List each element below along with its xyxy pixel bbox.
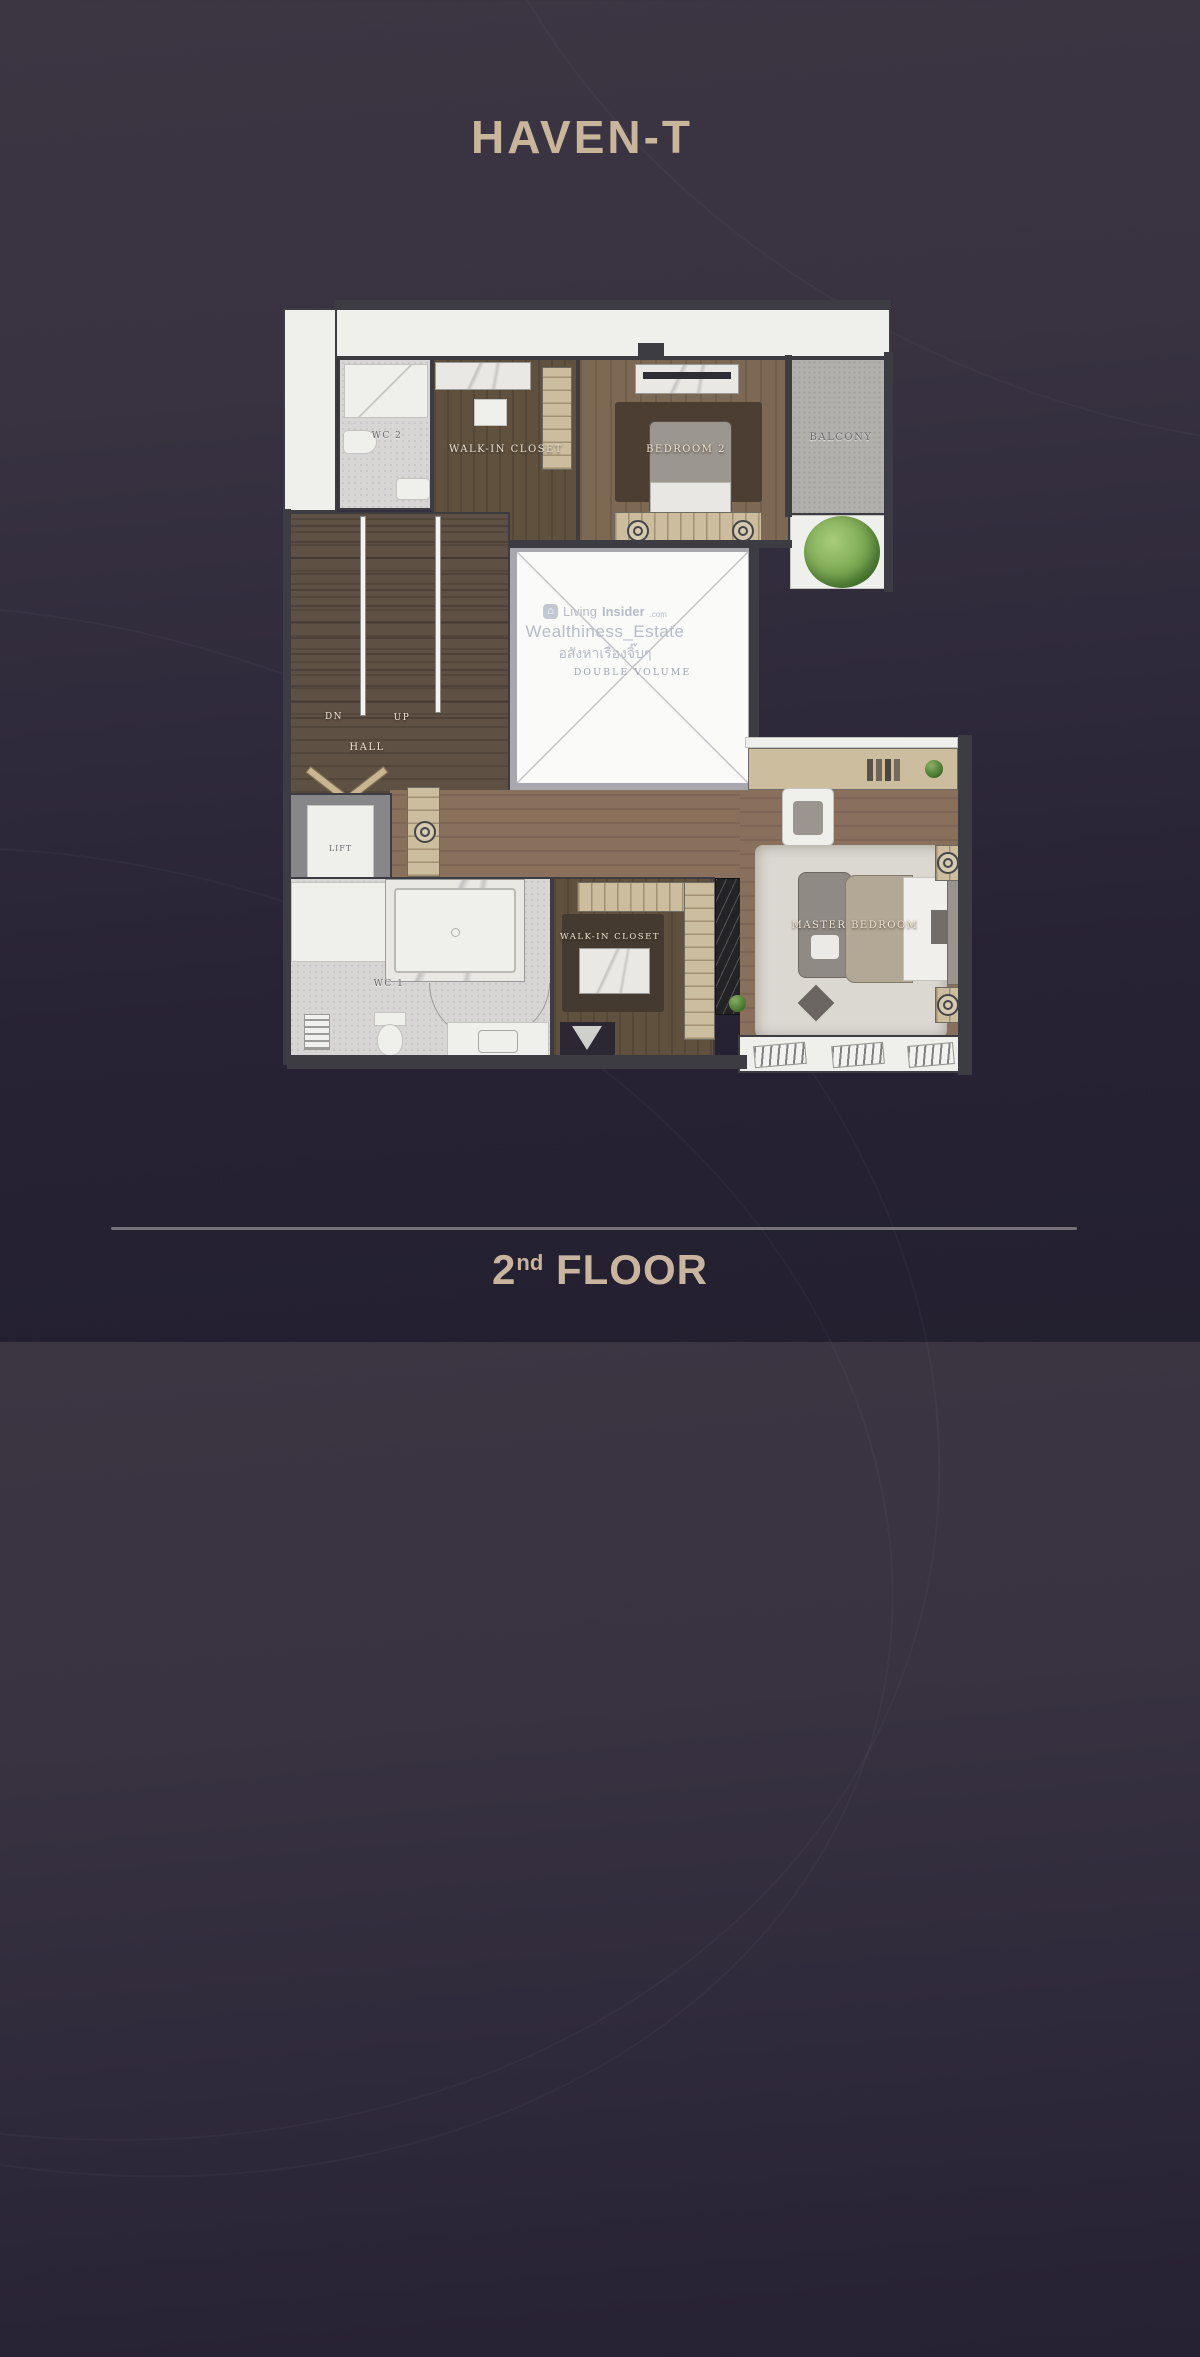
shower-room: [291, 882, 391, 962]
brand-name-bold: Insider: [602, 604, 645, 619]
stair-railing: [360, 516, 366, 716]
master-bedroom-label: MASTER BEDROOM: [765, 920, 945, 931]
book: [894, 759, 900, 781]
floor-number: 2: [492, 1246, 516, 1293]
room-hall: DN UP HALL: [285, 512, 510, 795]
wall-top: [335, 300, 891, 310]
wardrobe-top: [577, 882, 692, 912]
wall-right: [958, 735, 972, 1075]
sofa-pillow: [811, 935, 839, 959]
book: [867, 759, 873, 781]
nightlamp-icon: [937, 994, 959, 1016]
louver-window: [907, 1042, 955, 1068]
stairs-up-label: UP: [387, 713, 417, 723]
wall-balcony: [785, 355, 792, 517]
toilet: [377, 1024, 403, 1056]
planter: [790, 515, 888, 589]
book: [876, 759, 882, 781]
closet-island: [579, 948, 650, 994]
wardrobe-right: [684, 882, 715, 1040]
shower: [344, 364, 428, 418]
stair-treads: [287, 514, 508, 719]
tv: [643, 372, 731, 379]
closet-dresser: [474, 399, 507, 426]
desk-plant-icon: [925, 760, 943, 778]
floor-plant-icon: [729, 995, 746, 1012]
console-desk: [748, 748, 958, 790]
louver-window: [753, 1042, 807, 1068]
balcony-label: BALCONY: [792, 432, 890, 443]
stair-railing: [435, 516, 441, 713]
room-bedroom2: BEDROOM 2: [578, 358, 790, 545]
sink: [478, 1030, 518, 1053]
door-leaf: [572, 1026, 602, 1050]
footer-divider: [111, 1227, 1077, 1230]
watermark-account: Wealthiness_Estate: [505, 622, 705, 642]
brand-tld: .com: [650, 610, 667, 619]
chair-seat: [793, 801, 823, 835]
roof-ledge: [335, 308, 891, 358]
room-wc1: WC 1: [287, 877, 552, 1062]
bedroom2-label: BEDROOM 2: [606, 444, 766, 455]
page-title: HAVEN-T: [0, 110, 1164, 164]
wc2-label: WC 2: [340, 431, 434, 441]
nightlamp-icon: [732, 520, 754, 542]
towel-rack: [304, 1014, 330, 1050]
bathtub-platform: [385, 879, 525, 982]
brand-logo-icon: ⌂: [543, 604, 558, 619]
hall-label: HALL: [337, 742, 397, 753]
floorplan: WC 2 WALK-IN CLOSET BEDROOM 2 BALCONY DN…: [283, 300, 975, 1075]
watermark-brand-row: ⌂ Living Insider .com: [505, 604, 705, 619]
double-volume-void: DOUBLE VOLUME: [510, 545, 755, 790]
side-ledge: [283, 308, 337, 512]
floor-word: FLOOR: [556, 1246, 708, 1293]
tree-icon: [804, 516, 880, 588]
bathtub-drain: [451, 928, 460, 937]
wall-left: [283, 509, 291, 1065]
walkin-closet-top-label: WALK-IN CLOSET: [442, 442, 570, 457]
wc1-label: WC 1: [349, 979, 429, 989]
stairs-down-label: DN: [319, 712, 349, 722]
watermark-thai-line: อสังหาเรื่องจิ๊บๆ: [505, 643, 705, 665]
ceiling-lamp-icon: [414, 821, 436, 843]
walkin-closet-master-label: WALK-IN CLOSET: [554, 932, 666, 942]
double-volume-label: DOUBLE VOLUME: [517, 667, 748, 678]
louver-window: [831, 1042, 885, 1068]
brand-name-light: Living: [563, 604, 597, 619]
corridor: [390, 790, 742, 880]
nightlamp-icon: [937, 852, 959, 874]
floor-ordinal: nd: [516, 1250, 543, 1275]
wall-bottom: [287, 1055, 747, 1069]
room-balcony: BALCONY: [790, 358, 888, 515]
nightlamp-icon: [627, 520, 649, 542]
closet-counter: [435, 362, 531, 390]
louver-window-band: [738, 1035, 962, 1073]
bathtub: [394, 888, 516, 973]
book: [885, 759, 891, 781]
wall-right-top: [884, 352, 893, 592]
desk-chair: [782, 788, 834, 846]
basin: [396, 478, 430, 500]
window-sill: [745, 737, 958, 748]
room-wc2: WC 2: [338, 358, 432, 510]
watermark: ⌂ Living Insider .com Wealthiness_Estate…: [505, 604, 705, 665]
tv-console: [635, 364, 739, 394]
lift-label: LIFT: [308, 844, 373, 853]
floor-caption: 2nd FLOOR: [0, 1246, 1200, 1294]
